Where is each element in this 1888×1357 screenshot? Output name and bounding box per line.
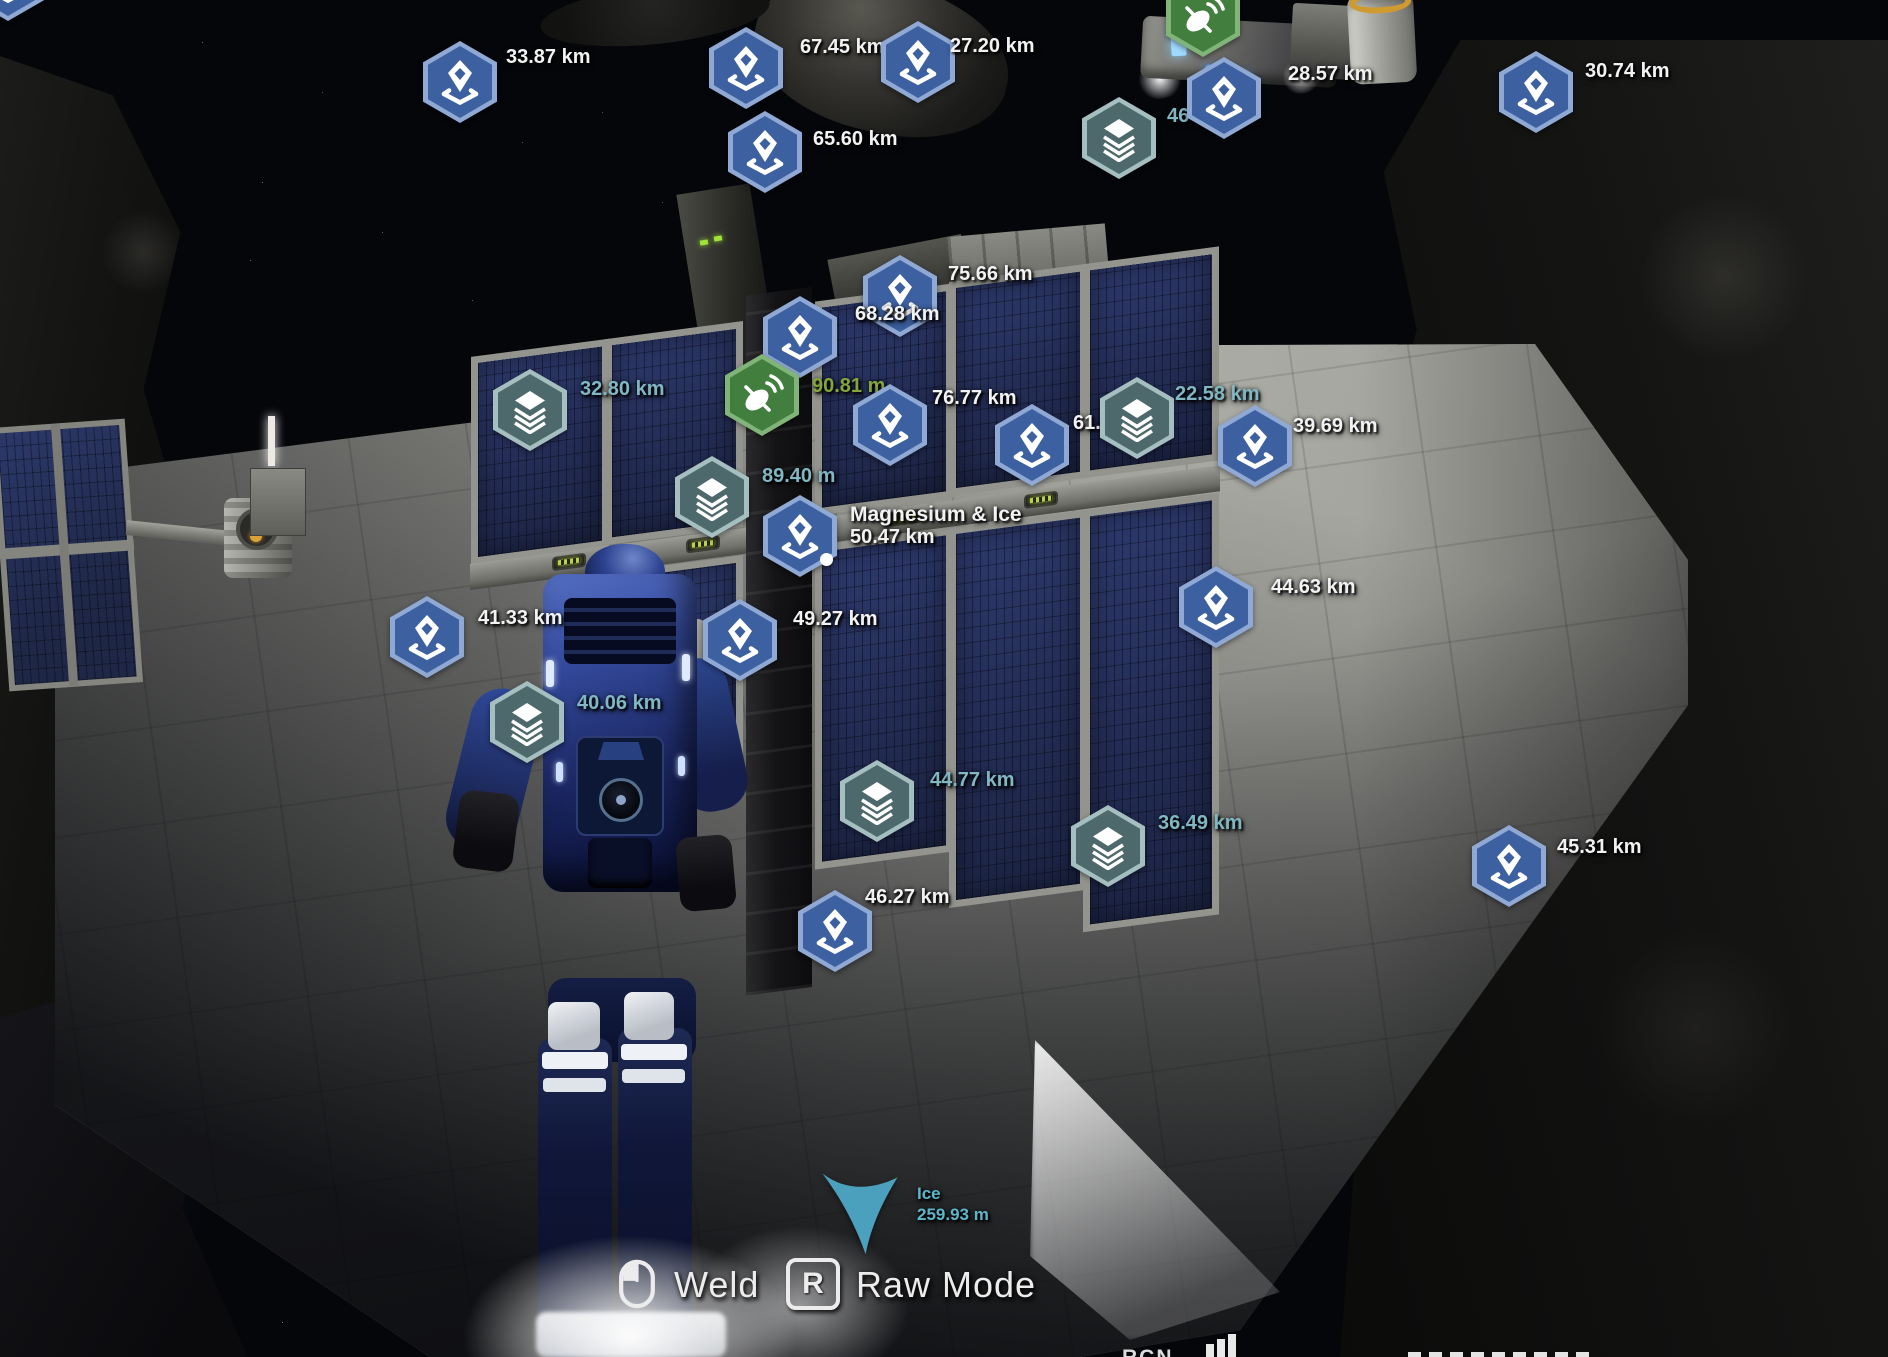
- signal-distance-label: 41.33 km: [478, 607, 563, 630]
- mouse-left-click-icon: [618, 1258, 656, 1310]
- signal-marker-gps: 28.57 km: [1187, 57, 1261, 139]
- layers-icon: [1084, 822, 1132, 870]
- key-r-icon: R: [786, 1258, 840, 1310]
- signal-label-line: 44.63 km: [1271, 576, 1356, 599]
- game-viewport[interactable]: 33.87 km67.45 km27.20 km4628.57 km30.74 …: [0, 0, 1888, 1357]
- signal-distance-label: 40.06 km: [577, 692, 662, 715]
- signal-distance-label: 30.74 km: [1585, 60, 1670, 83]
- signal-marker-materials: 89.40 m: [675, 456, 749, 538]
- signal-distance-label: 32.80 km: [580, 378, 665, 401]
- antenna-icon: [1179, 0, 1227, 40]
- signal-bars-icon: [1206, 1344, 1214, 1357]
- signal-distance-label: 44.77 km: [930, 769, 1015, 792]
- signal-distance-label: 49.27 km: [793, 608, 878, 631]
- gps-pin-icon: [866, 401, 914, 449]
- layers-icon: [503, 698, 551, 746]
- target-arrow-icon: [815, 1165, 905, 1261]
- signal-marker-layer: 33.87 km67.45 km27.20 km4628.57 km30.74 …: [0, 0, 1888, 1357]
- signal-distance-label: 75.66 km: [948, 263, 1033, 286]
- key-r-letter: R: [802, 1267, 824, 1301]
- signal-distance-label: 22.58 km: [1175, 383, 1260, 406]
- signal-marker-gps: 61.09: [995, 404, 1069, 486]
- signal-label-line: 46.27 km: [865, 886, 950, 909]
- layers-icon: [1095, 114, 1143, 162]
- weld-action-label: Weld: [674, 1264, 759, 1306]
- signal-label-line: 259.93 m: [917, 1204, 989, 1225]
- signal-marker-gps: 67.45 km: [709, 27, 783, 109]
- signal-label-line: 39.69 km: [1293, 415, 1378, 438]
- gps-pin-icon: [811, 907, 859, 955]
- signal-label-line: 46: [1167, 105, 1189, 128]
- gps-pin-icon: [1008, 421, 1056, 469]
- signal-label-line: 45.31 km: [1557, 836, 1642, 859]
- signal-label-line: 40.06 km: [577, 692, 662, 715]
- signal-distance-label: 36.49 km: [1158, 812, 1243, 835]
- signal-marker-gps: 45.31 km: [1472, 825, 1546, 907]
- signal-distance-label: 46: [1167, 105, 1189, 128]
- signal-marker-materials: 36.49 km: [1071, 805, 1145, 887]
- signal-distance-label: 28.57 km: [1288, 63, 1373, 86]
- signal-distance-label: 67.45 km: [800, 36, 885, 59]
- gps-pin-icon: [722, 44, 770, 92]
- signal-distance-label: 39.69 km: [1293, 415, 1378, 438]
- signal-label-line: 41.33 km: [478, 607, 563, 630]
- gps-pin-icon: [1512, 68, 1560, 116]
- clipped-hud-text-left: RCN: [1122, 1346, 1174, 1357]
- signal-label-line: 75.66 km: [948, 263, 1033, 286]
- gps-pin-icon: [403, 613, 451, 661]
- signal-distance-label: 44.63 km: [1271, 576, 1356, 599]
- gps-pin-icon: [716, 616, 764, 664]
- signal-label-line: 44.77 km: [930, 769, 1015, 792]
- signal-marker-antenna: [1166, 0, 1240, 57]
- signal-label-line: Magnesium & Ice: [850, 503, 1022, 526]
- gps-pin-icon: [1192, 583, 1240, 631]
- signal-bars-icon: [1228, 1334, 1236, 1357]
- signal-marker-gps: 44.63 km: [1179, 566, 1253, 648]
- signal-distance-label: 27.20 km: [950, 35, 1035, 58]
- signal-label-line: 89.40 m: [762, 465, 835, 488]
- signal-label-line: 50.47 km: [850, 526, 1022, 549]
- gps-pin-icon: [1485, 842, 1533, 890]
- raw-mode-label: Raw Mode: [856, 1264, 1036, 1306]
- layers-icon: [853, 777, 901, 825]
- gps-pin-icon: [1200, 74, 1248, 122]
- signal-marker-materials: 32.80 km: [493, 369, 567, 451]
- signal-marker-gps: [0, 0, 45, 21]
- signal-label-line: 36.49 km: [1158, 812, 1243, 835]
- signal-label-line: 28.57 km: [1288, 63, 1373, 86]
- signal-marker-gps: 65.60 km: [728, 111, 802, 193]
- signal-label-line: Ice: [917, 1183, 989, 1204]
- signal-marker-materials: 22.58 km: [1100, 377, 1174, 459]
- antenna-icon: [738, 371, 786, 419]
- signal-marker-gps: 46.27 km: [798, 890, 872, 972]
- signal-marker-materials: 46: [1082, 97, 1156, 179]
- layers-icon: [1113, 394, 1161, 442]
- signal-distance-label: 89.40 m: [762, 465, 835, 488]
- signal-marker-gps: 76.77 km: [853, 384, 927, 466]
- signal-marker-gps: 27.20 km: [881, 21, 955, 103]
- signal-bars-icon: [1217, 1339, 1225, 1357]
- gps-pin-icon: [741, 128, 789, 176]
- signal-distance-label: 33.87 km: [506, 46, 591, 69]
- signal-label-line: 22.58 km: [1175, 383, 1260, 406]
- signal-label-line: 32.80 km: [580, 378, 665, 401]
- signal-label-line: 27.20 km: [950, 35, 1035, 58]
- layers-icon: [506, 386, 554, 434]
- signal-marker-gps: 30.74 km: [1499, 51, 1573, 133]
- signal-marker-antenna: 90.81 m: [725, 354, 799, 436]
- signal-distance-label: 45.31 km: [1557, 836, 1642, 859]
- gps-pin-icon: [776, 512, 824, 560]
- signal-distance-label: 46.27 km: [865, 886, 950, 909]
- gps-pin-icon: [436, 58, 484, 106]
- signal-label-line: 49.27 km: [793, 608, 878, 631]
- signal-distance-label: Ice259.93 m: [917, 1183, 989, 1225]
- signal-marker-materials: 44.77 km: [840, 760, 914, 842]
- signal-distance-label: 68.28 km: [855, 303, 940, 326]
- signal-label-line: 65.60 km: [813, 128, 898, 151]
- signal-marker-gps: 39.69 km: [1218, 405, 1292, 487]
- signal-marker-gps: 33.87 km: [423, 41, 497, 123]
- signal-marker-gps: Magnesium & Ice50.47 km: [763, 495, 837, 577]
- clipped-hud-text-right: [1408, 1352, 1596, 1357]
- selected-signal-dot: [820, 553, 833, 566]
- gps-pin-icon: [0, 0, 32, 4]
- signal-distance-label: Magnesium & Ice50.47 km: [850, 503, 1022, 549]
- signal-marker-gps: 49.27 km: [703, 599, 777, 681]
- signal-marker-target: Ice259.93 m: [815, 1165, 905, 1261]
- signal-label-line: 68.28 km: [855, 303, 940, 326]
- gps-pin-icon: [894, 38, 942, 86]
- signal-marker-materials: 40.06 km: [490, 681, 564, 763]
- layers-icon: [688, 473, 736, 521]
- signal-label-line: 67.45 km: [800, 36, 885, 59]
- signal-label-line: 33.87 km: [506, 46, 591, 69]
- gps-pin-icon: [1231, 422, 1279, 470]
- signal-distance-label: 65.60 km: [813, 128, 898, 151]
- signal-label-line: 30.74 km: [1585, 60, 1670, 83]
- signal-marker-gps: 41.33 km: [390, 596, 464, 678]
